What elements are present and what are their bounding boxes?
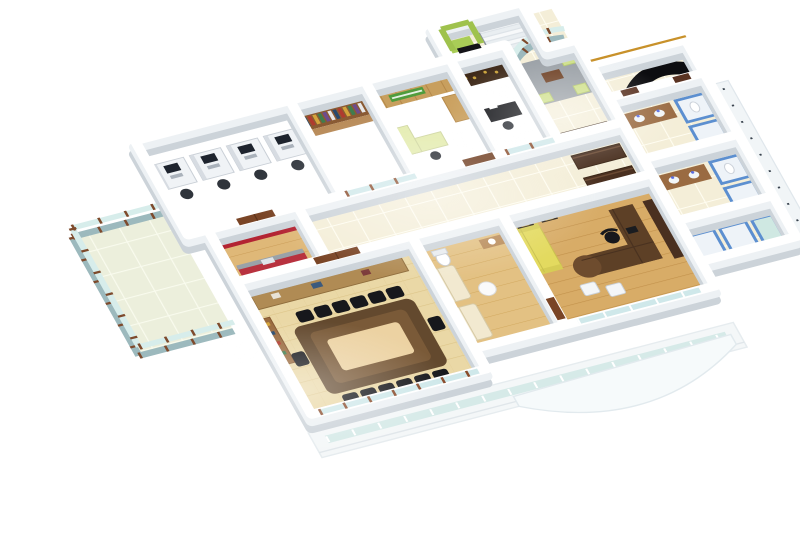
- task-chair: [178, 187, 196, 200]
- floorplan-render: [0, 0, 800, 550]
- task-chair: [215, 178, 233, 191]
